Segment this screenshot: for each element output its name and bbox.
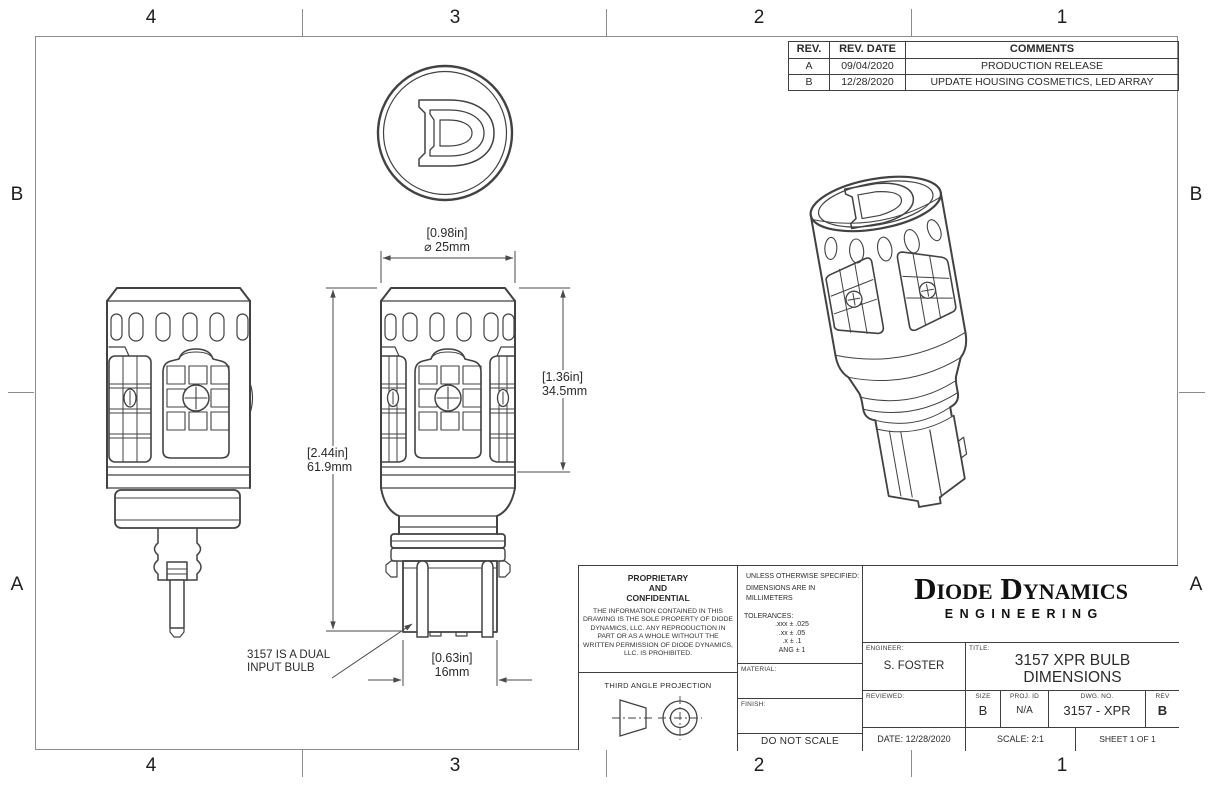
- front-view: [381, 288, 515, 637]
- rev-date-col-header: REV. DATE: [829, 42, 905, 58]
- drawing-title-box: TITLE: 3157 XPR BULB DIMENSIONS: [966, 643, 1179, 691]
- vent-slots: [821, 217, 946, 272]
- dim-base-width: [0.63in] 16mm: [410, 651, 494, 679]
- scale-box: SCALE: 2:1: [966, 728, 1076, 751]
- top-view: [378, 66, 512, 200]
- dim-diameter: [0.98in] ⌀ 25mm: [397, 226, 497, 254]
- drawing-sheet: 4 3 2 1 4 3 2 1 B A B A: [0, 0, 1214, 786]
- diode-dynamics-d-logo-icon: [419, 100, 494, 166]
- rev-cell: A: [789, 58, 829, 74]
- vent-slots: [111, 313, 248, 341]
- proprietary-notice: PROPRIETARY AND CONFIDENTIAL THE INFORMA…: [579, 566, 738, 673]
- rev-box: REV B: [1146, 691, 1179, 728]
- contact-pin: [167, 562, 187, 637]
- date-box: DATE: 12/28/2020: [863, 728, 966, 751]
- dim-overall-height: [2.44in] 61.9mm: [305, 446, 367, 474]
- title-block: PROPRIETARY AND CONFIDENTIAL THE INFORMA…: [578, 565, 1178, 750]
- note-leader-line: [332, 624, 412, 678]
- rev-col-header: REV.: [789, 42, 829, 58]
- third-angle-projection-box: THIRD ANGLE PROJECTION: [579, 673, 738, 751]
- reviewed-box: REVIEWED:: [863, 691, 966, 728]
- sheet-box: SHEET 1 OF 1: [1076, 728, 1179, 751]
- dim-housing-height: [1.36in] 34.5mm: [540, 370, 606, 398]
- revision-table: REV. REV. DATE COMMENTS A 09/04/2020 PRO…: [788, 41, 1179, 91]
- comment-cell: PRODUCTION RELEASE: [905, 58, 1178, 74]
- do-not-scale-note: DO NOT SCALE DRAWING: [738, 734, 863, 751]
- comments-col-header: COMMENTS: [905, 42, 1178, 58]
- dwg-no-box: DWG. NO. 3157 - XPR: [1049, 691, 1146, 728]
- comment-cell: UPDATE HOUSING COSMETICS, LED ARRAY: [905, 74, 1178, 90]
- wedge-base: [877, 415, 974, 512]
- finish-box: FINISH:: [738, 699, 863, 734]
- isometric-view: [806, 168, 993, 517]
- date-cell: 09/04/2020: [829, 58, 905, 74]
- side-view: [107, 288, 253, 637]
- proj-id-box: PROJ. ID N/A: [1001, 691, 1049, 728]
- engineer-box: ENGINEER: S. FOSTER: [863, 643, 966, 691]
- led-array-panel-left: [109, 347, 151, 462]
- led-array-panel-left: [824, 257, 885, 340]
- third-angle-projection-icon: [598, 692, 718, 744]
- size-box: SIZE B: [966, 691, 1001, 728]
- led-array-panel-center: [163, 349, 229, 458]
- company-logo: Diode Dynamics ENGINEERING: [863, 566, 1179, 643]
- base-collar: [115, 490, 240, 528]
- led-array-panel-center: [415, 349, 481, 458]
- date-cell: 12/28/2020: [829, 74, 905, 90]
- general-tolerances-box: UNLESS OTHERWISE SPECIFIED: DIMENSIONS A…: [738, 566, 863, 664]
- housing-taper: [381, 488, 515, 516]
- led-array-panel-right: [897, 244, 959, 331]
- page-title: 3157 XPR BULB DIMENSIONS: [966, 652, 1179, 686]
- material-box: MATERIAL:: [738, 664, 863, 699]
- wedge-base: [403, 561, 497, 637]
- callout-note: 3157 IS A DUAL INPUT BULB: [247, 649, 330, 675]
- rev-cell: B: [789, 74, 829, 90]
- vent-slots: [385, 313, 514, 341]
